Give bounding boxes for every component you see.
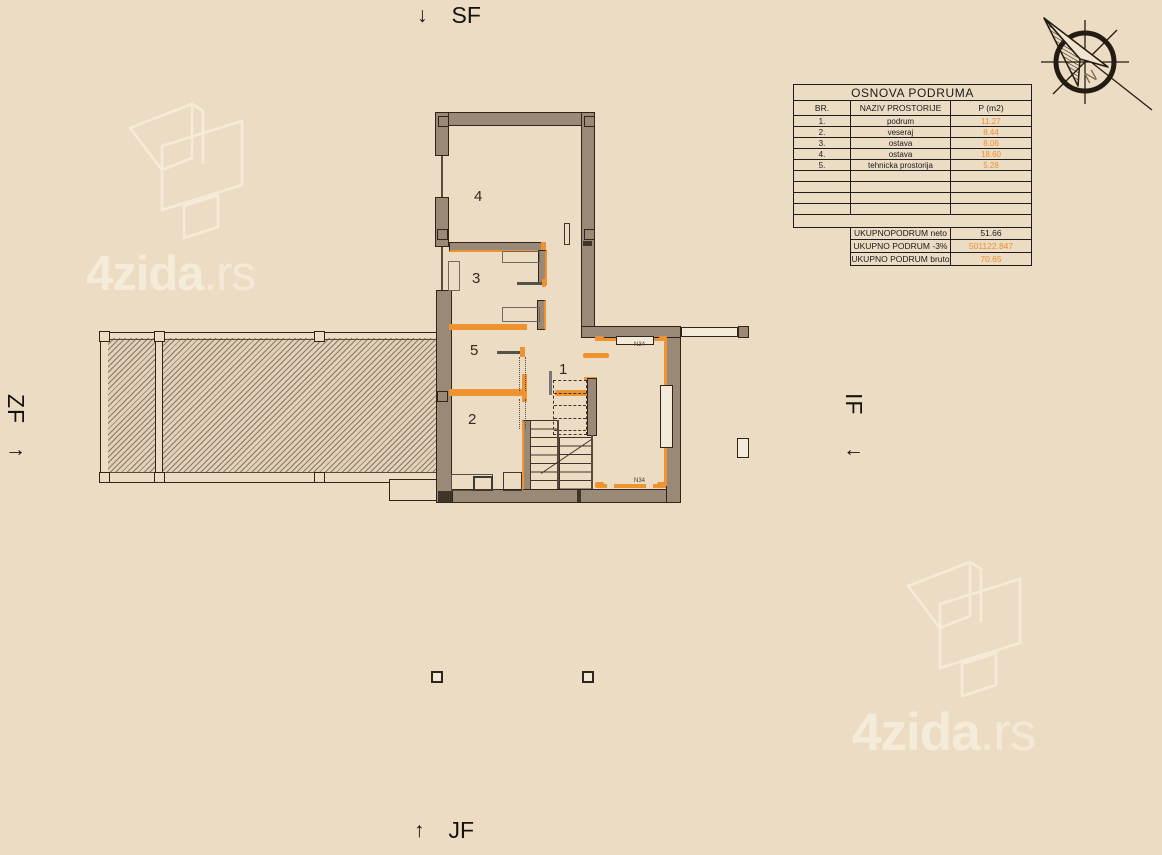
terrace-line: [101, 339, 436, 340]
door-leaf: [517, 282, 543, 285]
empty-cell: [851, 204, 951, 215]
table-row: 2. veseraj 8.44: [794, 127, 1032, 138]
watermark-logo: [118, 90, 268, 250]
wall-accent: [657, 482, 666, 488]
window: [681, 327, 738, 337]
room-label: 1: [559, 361, 567, 378]
down-arrow-icon: ↓: [417, 4, 428, 28]
watermark-brand: 4zida: [86, 247, 204, 301]
cell-br: 5.: [794, 160, 851, 171]
column-marker: [582, 671, 594, 683]
direction-label-zf: ZF: [2, 394, 29, 424]
radiator: [564, 223, 570, 245]
window-gap: [607, 484, 614, 488]
wall-segment: [581, 112, 595, 330]
cell-br: 1.: [794, 116, 851, 127]
wall-segment: [738, 326, 749, 338]
interior-wall-accent: [449, 389, 523, 396]
empty-cell: [794, 182, 851, 193]
empty-cell: [794, 171, 851, 182]
window-gap: [646, 484, 653, 488]
summary-row: UKUPNOPODRUM neto 51.66: [851, 227, 1032, 240]
empty-cell: [951, 182, 1032, 193]
wall-accent: [595, 482, 604, 488]
cell-area: 18.60: [951, 149, 1032, 160]
empty-cell: [951, 204, 1032, 215]
wall-segment: [452, 489, 681, 503]
right-arrow-icon: →: [5, 438, 26, 462]
table-summary: UKUPNOPODRUM neto 51.66 UKUPNO PODRUM -3…: [850, 227, 1032, 266]
watermark-text: 4zida.rs: [86, 246, 255, 302]
watermark-tld: .rs: [204, 247, 255, 301]
4zida-logo-icon: [118, 90, 268, 250]
terrace-post: [99, 472, 110, 483]
room-label: 3: [472, 270, 480, 287]
furniture: [502, 251, 540, 263]
door-opening-dashes: [525, 357, 526, 391]
area-table: OSNOVA PODRUMA BR. NAZIV PROSTORIJE P (m…: [793, 84, 1032, 228]
table-title: OSNOVA PODRUMA: [794, 85, 1032, 101]
exterior-step: [389, 479, 438, 501]
stair-tread: [554, 394, 586, 407]
table-row: 3. ostava 8.06: [794, 138, 1032, 149]
terrace-line: [101, 472, 436, 473]
column-marker: [437, 391, 448, 402]
direction-north: ↓ SF: [417, 2, 481, 29]
direction-label-jf: JF: [449, 817, 475, 844]
empty-cell: [951, 171, 1032, 182]
table-row: 5. tehnicka prostorija 5.28: [794, 160, 1032, 171]
table-row: 4. ostava 18.60: [794, 149, 1032, 160]
cell-br: 4.: [794, 149, 851, 160]
compass-icon: N: [1038, 12, 1158, 114]
empty-cell: [851, 182, 951, 193]
table-empty-row: [794, 182, 1032, 193]
table-row: 1. podrum 11.27: [794, 116, 1032, 127]
summary-value: 501122.847: [951, 240, 1032, 253]
cell-name: veseraj: [851, 127, 951, 138]
cell-name: ostava: [851, 138, 951, 149]
summary-value: 70.65: [951, 253, 1032, 266]
window: [660, 385, 673, 448]
column-marker: [438, 116, 449, 127]
column-marker: [584, 229, 595, 240]
column-marker: [584, 116, 595, 127]
terrace-divider: [155, 333, 163, 482]
terrace-post: [154, 472, 165, 483]
summary-row: UKUPNO PODRUM bruto 70.65: [851, 253, 1032, 266]
wall-tick: [577, 490, 581, 502]
window-line: [441, 156, 443, 197]
fixture: [503, 472, 522, 491]
cell-name: tehnicka prostorija: [851, 160, 951, 171]
direction-label-sf: SF: [452, 2, 481, 29]
door-hinge-accent: [542, 279, 546, 287]
table-header-row: BR. NAZIV PROSTORIJE P (m2): [794, 101, 1032, 116]
door-opening-dashes: [525, 399, 526, 429]
wall-accent: [659, 336, 667, 341]
table-empty-row: [794, 204, 1032, 215]
wall-tick: [583, 241, 592, 246]
watermark-brand: 4zida: [852, 703, 980, 762]
terrace-post: [314, 472, 325, 483]
terrace-post: [154, 331, 165, 342]
summary-label: UKUPNO PODRUM -3%: [851, 240, 951, 253]
summary-label: UKUPNOPODRUM neto: [851, 227, 951, 240]
table-empty-row: [794, 193, 1032, 204]
exterior-pillar: [737, 438, 749, 458]
stair-tread: [554, 381, 586, 394]
window-line: [441, 247, 443, 290]
floor-plan-sheet: 4zida.rs 4zida.rs: [0, 0, 1162, 855]
watermark-tld: .rs: [980, 703, 1036, 762]
cell-br: 2.: [794, 127, 851, 138]
window-label: N34: [634, 478, 645, 484]
wall-accent: [583, 353, 609, 358]
cell-area: 8.44: [951, 127, 1032, 138]
fixture: [473, 476, 493, 491]
col-header-name: NAZIV PROSTORIJE: [851, 101, 951, 116]
summary-value: 51.66: [951, 227, 1032, 240]
col-header-area: P (m2): [951, 101, 1032, 116]
room-label: 4: [474, 188, 482, 205]
summary-row: UKUPNO PODRUM -3% 501122.847: [851, 240, 1032, 253]
wall-notch: [438, 491, 452, 502]
empty-cell: [851, 171, 951, 182]
summary-label: UKUPNO PODRUM bruto: [851, 253, 951, 266]
wall-accent: [595, 336, 604, 341]
cell-br: 3.: [794, 138, 851, 149]
empty-cell: [794, 204, 851, 215]
up-arrow-icon: ↑: [414, 819, 425, 843]
watermark-logo: [896, 548, 1046, 708]
room-label: 5: [470, 342, 478, 359]
empty-cell: [951, 193, 1032, 204]
door-leaf: [549, 371, 552, 395]
stair-tread: [554, 419, 586, 432]
door-opening-dashes: [519, 399, 520, 429]
empty-cell: [794, 193, 851, 204]
cell-name: ostava: [851, 149, 951, 160]
furniture: [448, 261, 460, 291]
empty-cell: [851, 193, 951, 204]
col-header-br: BR.: [794, 101, 851, 116]
table-title-row: OSNOVA PODRUMA: [794, 85, 1032, 101]
cell-area: 5.28: [951, 160, 1032, 171]
direction-south: ↑ JF: [414, 817, 474, 844]
room-label: 2: [468, 411, 476, 428]
watermark-text: 4zida.rs: [852, 702, 1035, 763]
direction-label-if: IF: [840, 393, 867, 415]
cell-name: podrum: [851, 116, 951, 127]
door-opening-dashes: [519, 357, 520, 391]
column-marker: [437, 229, 448, 240]
stair-edge-line: [591, 435, 593, 489]
table-empty-row: [794, 171, 1032, 182]
terrace-post: [99, 331, 110, 342]
left-arrow-icon: ←: [843, 438, 864, 462]
window-label: N34: [634, 342, 645, 348]
column-marker: [431, 671, 443, 683]
interior-wall: [587, 378, 597, 436]
stair-treads-dashed: [553, 380, 587, 435]
stair-tread: [554, 406, 586, 419]
furniture: [502, 307, 540, 322]
interior-wall-accent: [449, 324, 527, 330]
compass-rose: N: [1038, 12, 1158, 114]
cell-area: 11.27: [951, 116, 1032, 127]
4zida-logo-icon: [896, 548, 1046, 708]
terrace-post: [314, 331, 325, 342]
door-hinge-accent: [520, 347, 525, 357]
wall-segment: [435, 112, 595, 126]
cell-area: 8.06: [951, 138, 1032, 149]
stair-treads: [559, 437, 591, 489]
